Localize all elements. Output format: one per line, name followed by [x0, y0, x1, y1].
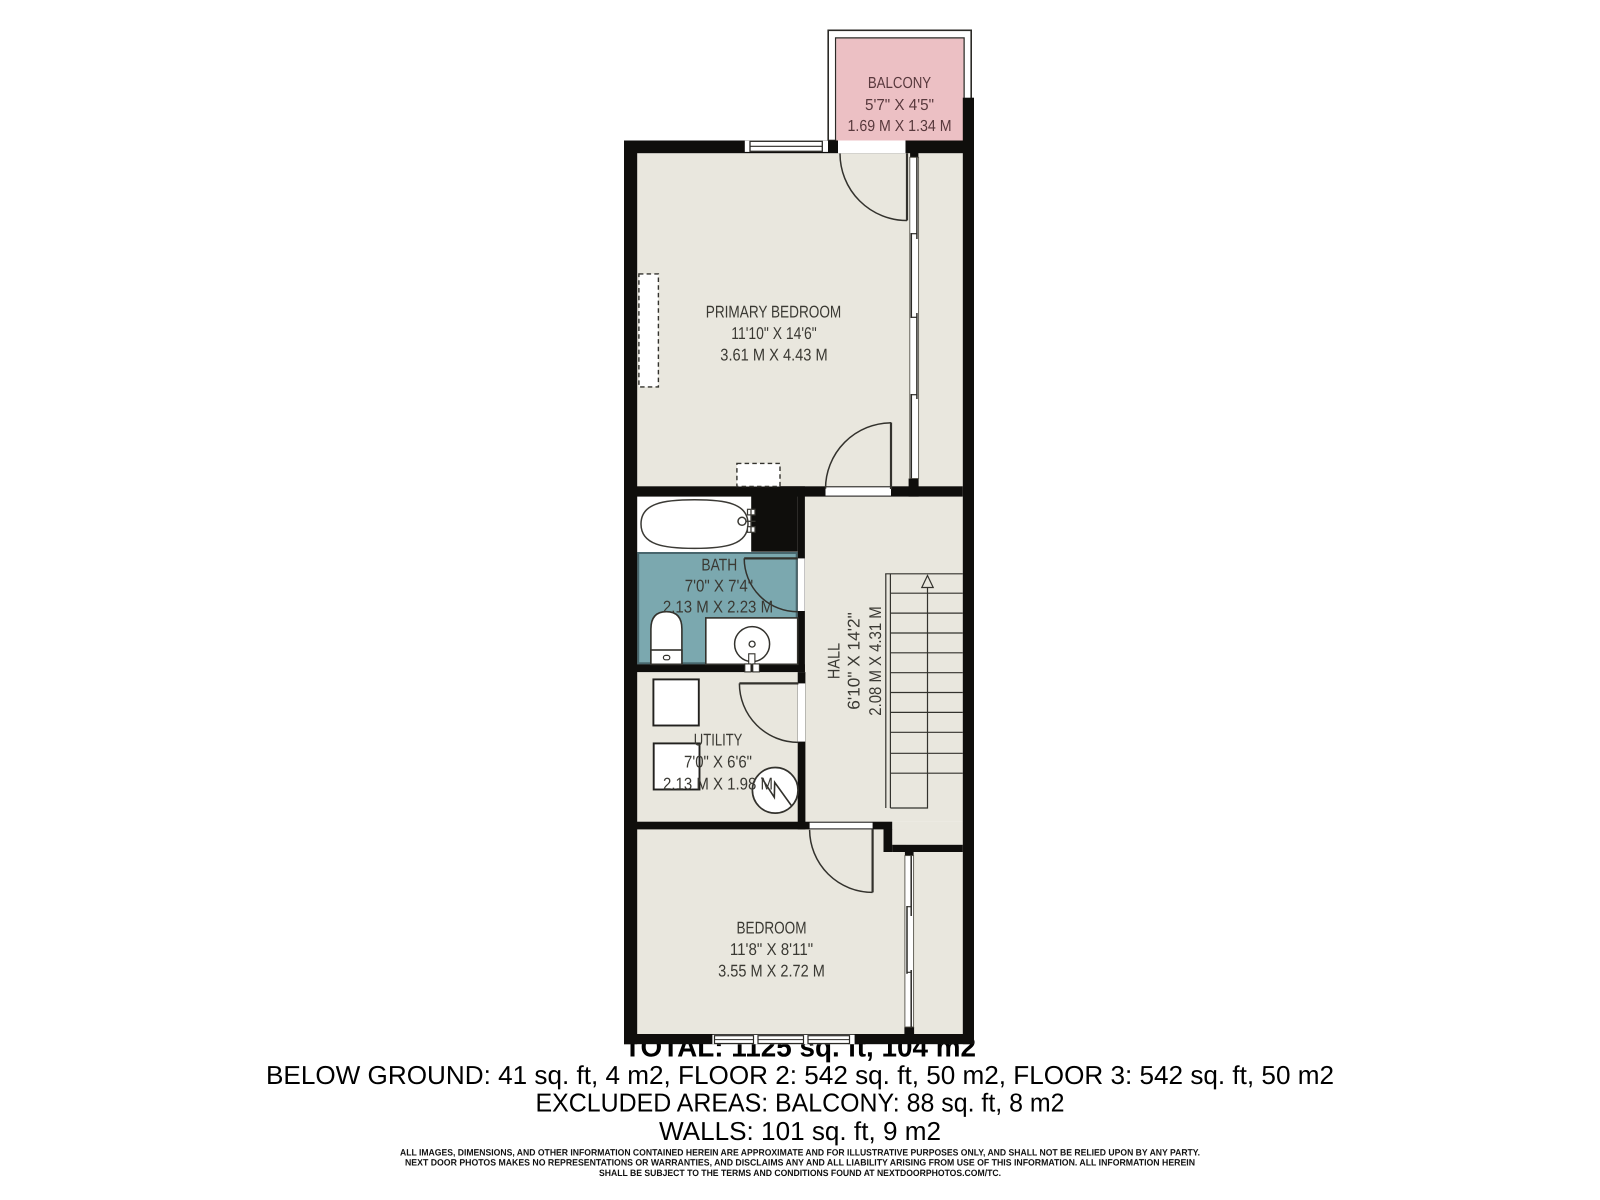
- svg-text:6'10" X 14'2": 6'10" X 14'2": [845, 612, 864, 710]
- svg-text:PRIMARY BEDROOM: PRIMARY BEDROOM: [706, 303, 842, 322]
- svg-text:2.13 M X 1.98 M: 2.13 M X 1.98 M: [663, 775, 773, 794]
- svg-text:SHALL BE SUBJECT TO THE TERMS: SHALL BE SUBJECT TO THE TERMS AND CONDIT…: [599, 1168, 1001, 1178]
- svg-text:ALL IMAGES, DIMENSIONS, AND OT: ALL IMAGES, DIMENSIONS, AND OTHER INFORM…: [400, 1147, 1200, 1157]
- svg-text:5'7" X 4'5": 5'7" X 4'5": [865, 97, 934, 114]
- svg-text:2.13 M X 2.23 M: 2.13 M X 2.23 M: [663, 598, 773, 617]
- svg-text:7'0" X 6'6": 7'0" X 6'6": [684, 753, 752, 772]
- svg-text:HALL: HALL: [824, 643, 843, 679]
- svg-text:BALCONY: BALCONY: [868, 75, 932, 92]
- svg-text:2.08 M X 4.31 M: 2.08 M X 4.31 M: [866, 606, 885, 715]
- svg-text:BEDROOM: BEDROOM: [737, 919, 807, 938]
- svg-text:11'8" X 8'11": 11'8" X 8'11": [730, 940, 813, 959]
- svg-text:3.55 M X 2.72 M: 3.55 M X 2.72 M: [718, 962, 825, 981]
- svg-text:BATH: BATH: [701, 556, 737, 575]
- svg-text:NEXT DOOR PHOTOS MAKES NO REPR: NEXT DOOR PHOTOS MAKES NO REPRESENTATION…: [405, 1158, 1195, 1168]
- svg-text:1.69 M X 1.34 M: 1.69 M X 1.34 M: [848, 118, 952, 135]
- svg-text:3.61 M X 4.43 M: 3.61 M X 4.43 M: [720, 346, 827, 365]
- svg-text:EXCLUDED AREAS: BALCONY: 88 sq: EXCLUDED AREAS: BALCONY: 88 sq. ft, 8 m2: [536, 1088, 1065, 1118]
- svg-text:WALLS: 101 sq. ft, 9 m2: WALLS: 101 sq. ft, 9 m2: [659, 1116, 941, 1146]
- svg-text:UTILITY: UTILITY: [694, 731, 743, 750]
- svg-text:11'10" X 14'6": 11'10" X 14'6": [731, 324, 816, 343]
- svg-text:7'0" X 7'4": 7'0" X 7'4": [685, 577, 753, 596]
- svg-text:BELOW GROUND: 41 sq. ft, 4 m2,: BELOW GROUND: 41 sq. ft, 4 m2, FLOOR 2: …: [266, 1060, 1334, 1090]
